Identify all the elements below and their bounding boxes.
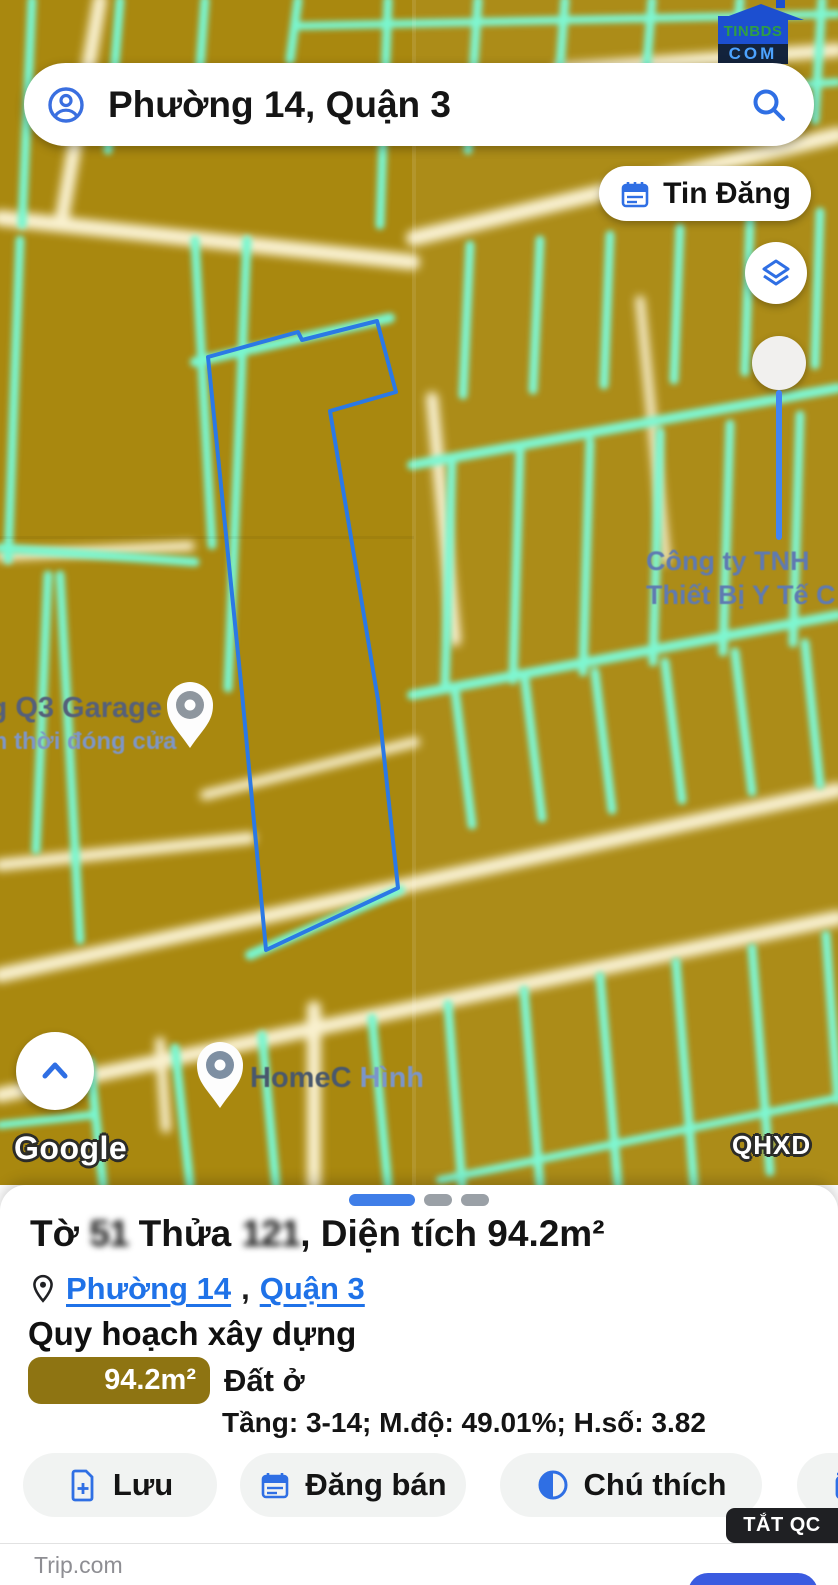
zone-type-label: Đất ở xyxy=(224,1363,305,1399)
search-icon[interactable] xyxy=(750,86,788,124)
zoom-slider-handle[interactable] xyxy=(752,336,806,390)
map-canvas[interactable]: ng Q3 Garage m thời đóng cửa Công ty TNH… xyxy=(0,0,838,1185)
file-plus-icon xyxy=(67,1468,99,1502)
search-input[interactable]: Phường 14, Quận 3 xyxy=(108,84,750,126)
district-link[interactable]: Quận 3 xyxy=(260,1271,365,1307)
layers-button[interactable] xyxy=(745,242,807,304)
close-ad-button[interactable]: TẮT QC xyxy=(726,1508,838,1543)
to-number-obscured: 51 xyxy=(89,1213,128,1254)
action-bar: Lưu Đăng bán Chú thích xyxy=(0,1453,838,1517)
page-dot xyxy=(461,1194,489,1206)
thua-number-obscured: 121 xyxy=(241,1213,300,1254)
search-bar[interactable]: Phường 14, Quận 3 xyxy=(24,63,814,146)
parcel-title: Tờ 51 Thửa 121, Diện tích 94.2m² xyxy=(30,1213,605,1255)
account-icon[interactable] xyxy=(46,85,86,125)
ward-link[interactable]: Phường 14 xyxy=(66,1271,231,1307)
tin-dang-button[interactable]: Tin Đăng xyxy=(599,166,811,221)
listing-table-icon xyxy=(259,1469,291,1501)
tinbds-logo: TINBDS COM xyxy=(710,2,796,64)
contrast-icon xyxy=(536,1468,570,1502)
collapse-panel-button[interactable] xyxy=(16,1032,94,1110)
zone-detail-label: Tầng: 3-14; M.độ: 49.01%; H.số: 3.82 xyxy=(222,1407,706,1439)
ad-brand-label: Trip.com xyxy=(34,1552,123,1579)
house-icon: TINBDS xyxy=(718,16,788,44)
legend-button[interactable]: Chú thích xyxy=(500,1453,762,1517)
save-button[interactable]: Lưu xyxy=(23,1453,217,1517)
chevron-up-icon xyxy=(33,1049,77,1093)
page-indicator xyxy=(0,1194,838,1206)
page-dot-active xyxy=(349,1194,415,1206)
sell-button[interactable]: Đăng bán xyxy=(240,1453,466,1517)
zone-area-swatch: 94.2m² xyxy=(28,1357,210,1404)
ad-cta-button[interactable] xyxy=(688,1573,818,1585)
page-dot xyxy=(424,1194,452,1206)
zoom-slider-track[interactable] xyxy=(776,390,782,540)
parcel-location: Phường 14, Quận 3 xyxy=(30,1271,365,1307)
ad-banner[interactable]: Trip.com xyxy=(0,1543,838,1585)
camera-plus-icon xyxy=(833,1468,838,1502)
planning-heading: Quy hoạch xây dựng xyxy=(28,1315,356,1353)
layers-icon xyxy=(757,254,795,292)
app-screen: ng Q3 Garage m thời đóng cửa Công ty TNH… xyxy=(0,0,838,1585)
listing-table-icon xyxy=(619,178,651,210)
parcel-info-sheet: Tờ 51 Thửa 121, Diện tích 94.2m² Phường … xyxy=(0,1185,838,1545)
location-pin-icon xyxy=(30,1274,56,1304)
